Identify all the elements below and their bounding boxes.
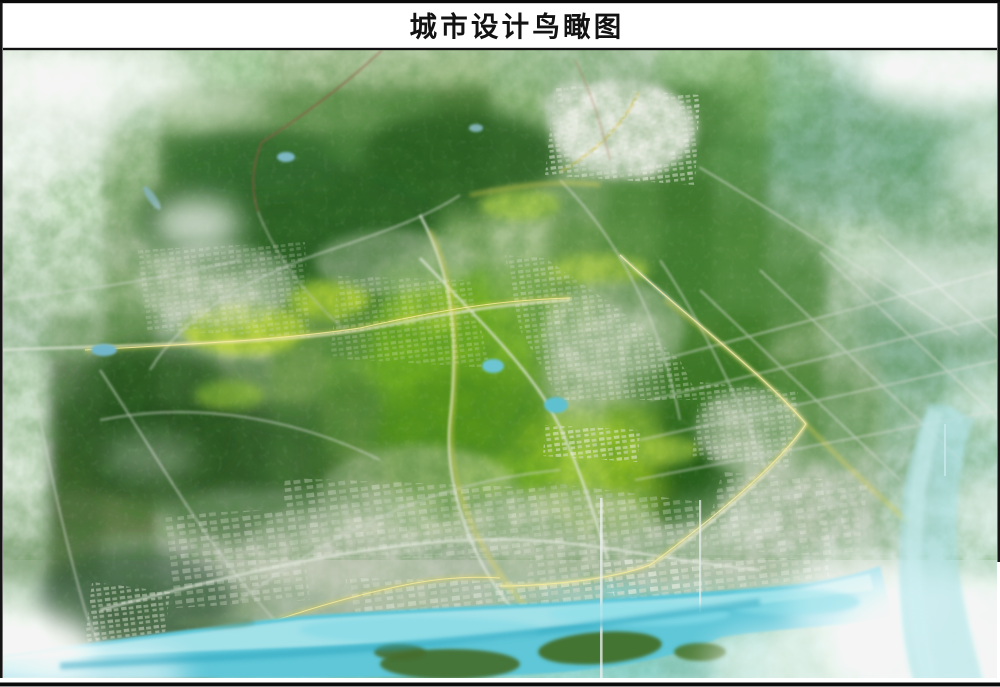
svg-text:城市设计鸟瞰图: 城市设计鸟瞰图 <box>410 11 625 42</box>
